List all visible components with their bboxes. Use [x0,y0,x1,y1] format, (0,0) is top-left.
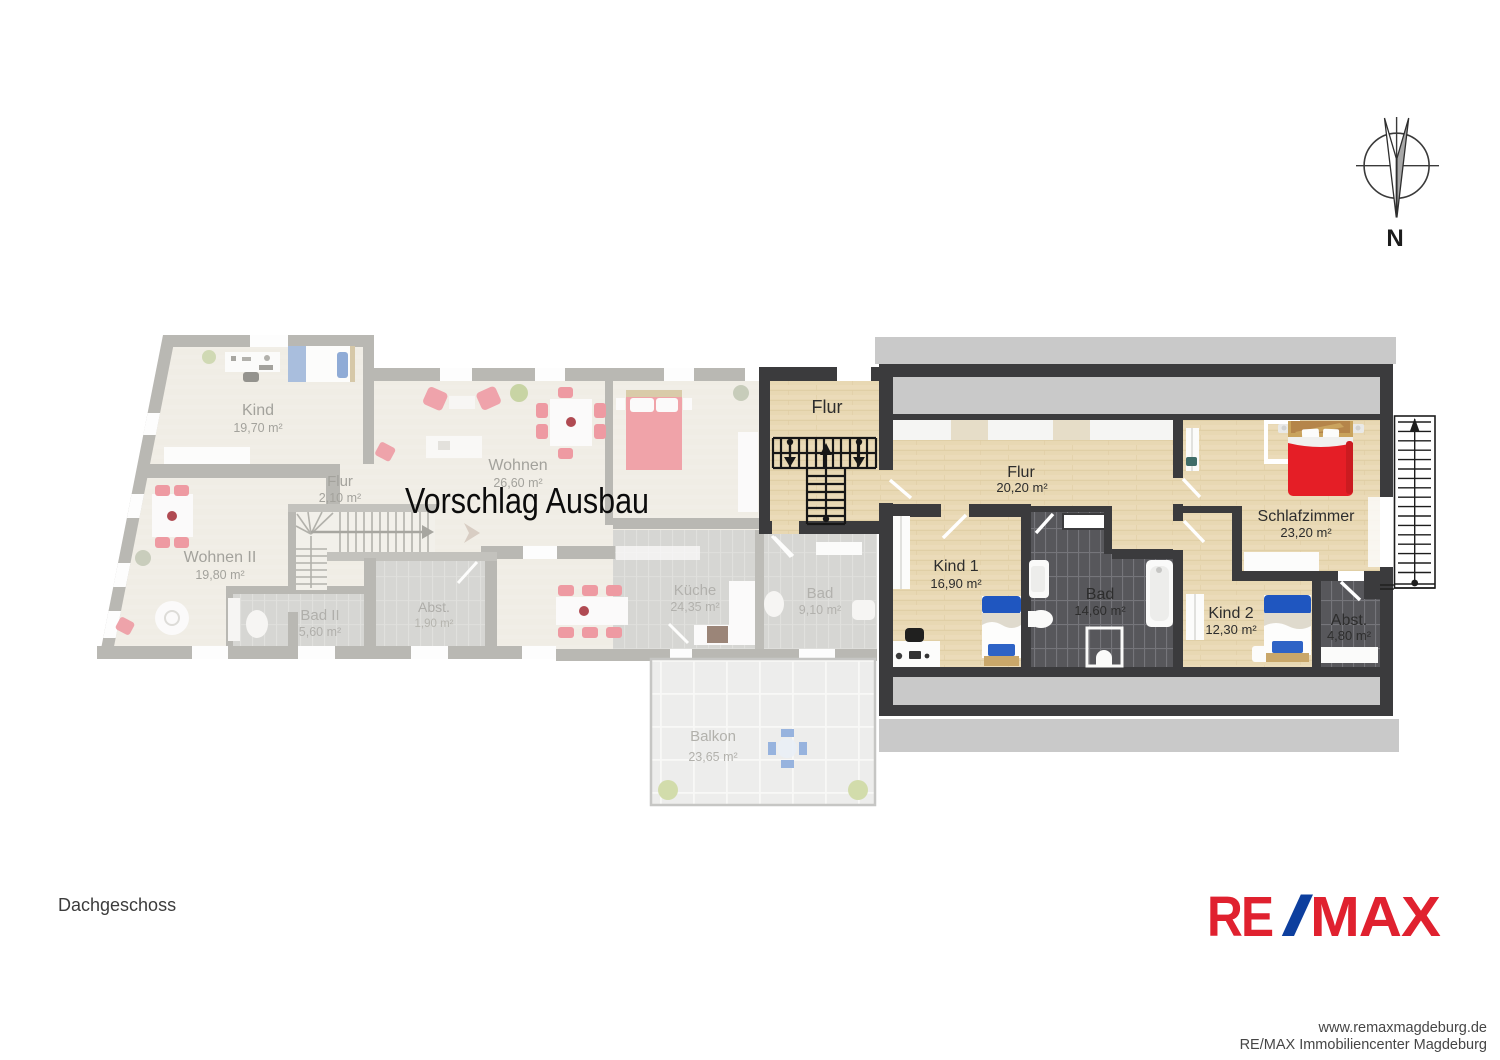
svg-text:Bad II: Bad II [300,607,339,624]
svg-text:23,20 m²: 23,20 m² [1280,525,1332,540]
svg-text:MAX: MAX [1310,885,1441,948]
svg-text:N: N [1386,225,1403,252]
svg-text:4,80 m²: 4,80 m² [1327,628,1372,643]
svg-text:Balkon: Balkon [690,728,736,745]
svg-text:12,30 m²: 12,30 m² [1205,622,1257,637]
svg-text:Wohnen II: Wohnen II [184,549,257,566]
svg-text:Wohnen: Wohnen [488,457,547,474]
svg-text:1,90 m²: 1,90 m² [415,618,454,630]
svg-text:16,90 m²: 16,90 m² [930,576,982,591]
svg-text:RE/MAX Immobiliencenter Magdeb: RE/MAX Immobiliencenter Magdeburg [1240,1037,1487,1053]
svg-text:Bad: Bad [1086,586,1114,603]
svg-text:Küche: Küche [674,582,717,599]
svg-text:Kind: Kind [242,402,274,419]
svg-text:Kind 2: Kind 2 [1208,605,1253,622]
svg-text:Flur: Flur [1007,464,1035,481]
svg-text:9,10 m²: 9,10 m² [799,603,841,617]
svg-text:Dachgeschoss: Dachgeschoss [58,895,176,915]
svg-text:24,35 m²: 24,35 m² [670,600,719,614]
svg-text:19,80 m²: 19,80 m² [195,568,244,582]
svg-text:Bad: Bad [807,585,834,602]
svg-text:Kind 1: Kind 1 [933,558,978,575]
svg-text:RE: RE [1207,886,1273,949]
svg-text:Abst.: Abst. [1331,612,1367,629]
svg-text:14,60 m²: 14,60 m² [1074,603,1126,618]
svg-text:Vorschlag Ausbau: Vorschlag Ausbau [405,480,649,521]
svg-text:Abst.: Abst. [418,599,450,615]
svg-text:19,70 m²: 19,70 m² [233,421,282,435]
svg-text:23,65 m²: 23,65 m² [688,750,737,764]
svg-text:20,20 m²: 20,20 m² [996,480,1048,495]
svg-text:Flur: Flur [812,397,843,417]
svg-text:5,60 m²: 5,60 m² [299,625,341,639]
svg-text:Flur: Flur [327,473,353,490]
svg-text:www.remaxmagdeburg.de: www.remaxmagdeburg.de [1318,1020,1487,1036]
svg-text:2,10 m²: 2,10 m² [319,491,361,505]
svg-text:Schlafzimmer: Schlafzimmer [1258,508,1356,525]
